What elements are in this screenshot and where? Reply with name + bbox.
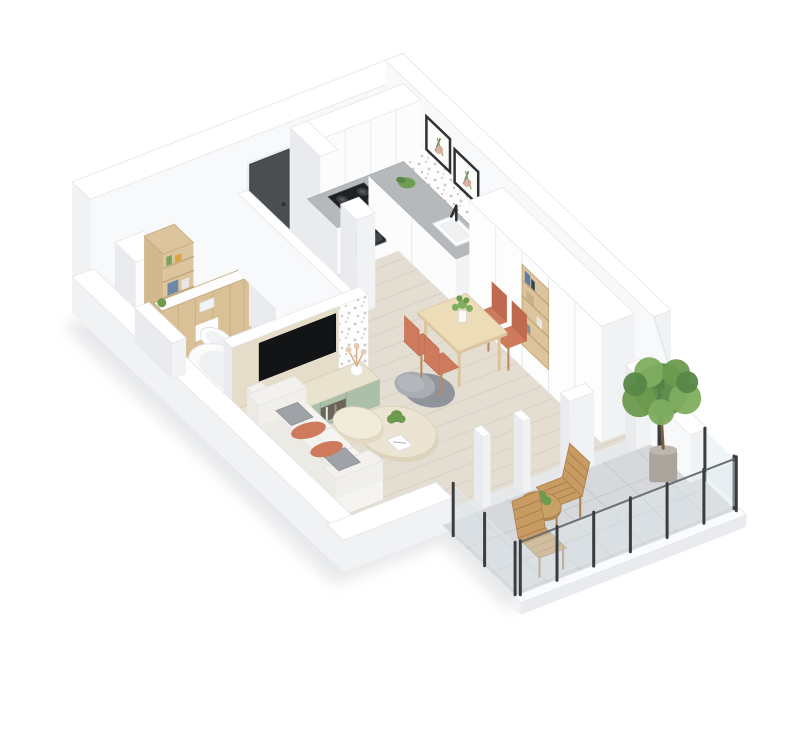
door-handle [282,202,286,206]
small-plant [157,298,166,307]
floorplan-svg [0,0,800,740]
floorplan-render [0,0,800,740]
